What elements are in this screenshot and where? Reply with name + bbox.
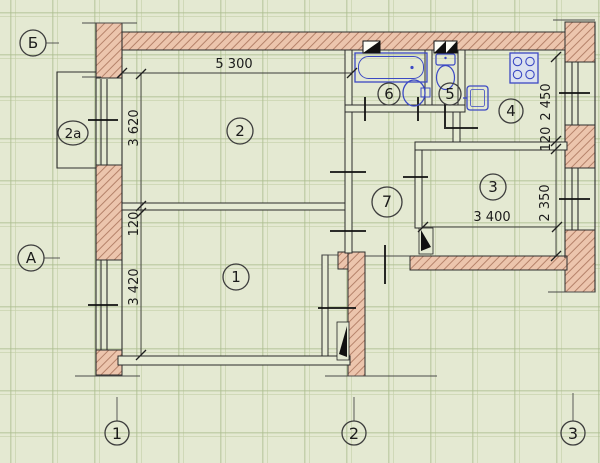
wall-right-pier: [565, 125, 595, 168]
wall-top-right-corner: [565, 22, 595, 62]
axis-2-label: 2: [349, 424, 359, 443]
room2-label: 2: [235, 122, 245, 140]
axis-A-label: А: [26, 249, 37, 267]
room2a-label: 2a: [65, 126, 82, 142]
wall-hall-left: [345, 50, 352, 253]
dim-room3-width: 3 400: [473, 210, 510, 225]
dim-left-wall: 120: [127, 212, 142, 237]
room7-label: 7: [382, 192, 392, 211]
wall-top: [120, 32, 567, 50]
vent-shaft-icon: [434, 41, 457, 53]
kitchen-sink-icon: [463, 86, 488, 110]
floor-plan-drawing: 5 300 3 620 120 3 420 2 450 120 2 350 3 …: [0, 0, 600, 463]
wall-room3-left: [415, 150, 422, 228]
wall-bath-bottom: [345, 105, 465, 112]
floor-plan: 5 300 3 620 120 3 420 2 450 120 2 350 3 …: [0, 0, 600, 463]
room4-label: 4: [506, 102, 516, 120]
axis-1-label: 1: [112, 424, 122, 443]
dim-left-upper: 3 620: [127, 109, 142, 146]
room6-label: 6: [384, 85, 394, 103]
axis-3-label: 3: [568, 424, 578, 443]
wall-entry-vertical: [348, 252, 365, 376]
wall-room2-room1: [122, 203, 348, 210]
dim-right-wall: 120: [539, 127, 554, 152]
dim-right-upper: 2 450: [539, 83, 554, 120]
room1-label: 1: [231, 268, 241, 286]
axis-B-label: Б: [28, 34, 38, 52]
wall-left-pier: [96, 165, 122, 260]
partition-walls: [118, 50, 567, 365]
window-left-upper: [101, 79, 107, 165]
dim-right-lower: 2 350: [538, 184, 553, 221]
room5-label: 5: [445, 85, 455, 103]
vent-shaft-icon: [363, 41, 380, 53]
stove-icon: [510, 53, 538, 83]
wall-bath-wc: [425, 50, 432, 108]
wall-left-top-corner: [96, 23, 122, 78]
wall-room1-bottom-window: [118, 356, 350, 365]
room3-label: 3: [488, 178, 498, 196]
wall-room3-bottom: [410, 256, 567, 270]
wall-closet: [322, 255, 328, 358]
dim-left-lower: 3 420: [127, 268, 142, 305]
bathtub-icon: [355, 53, 427, 82]
wall-right-bottom-block: [565, 230, 595, 292]
dim-top-width: 5 300: [215, 57, 252, 72]
